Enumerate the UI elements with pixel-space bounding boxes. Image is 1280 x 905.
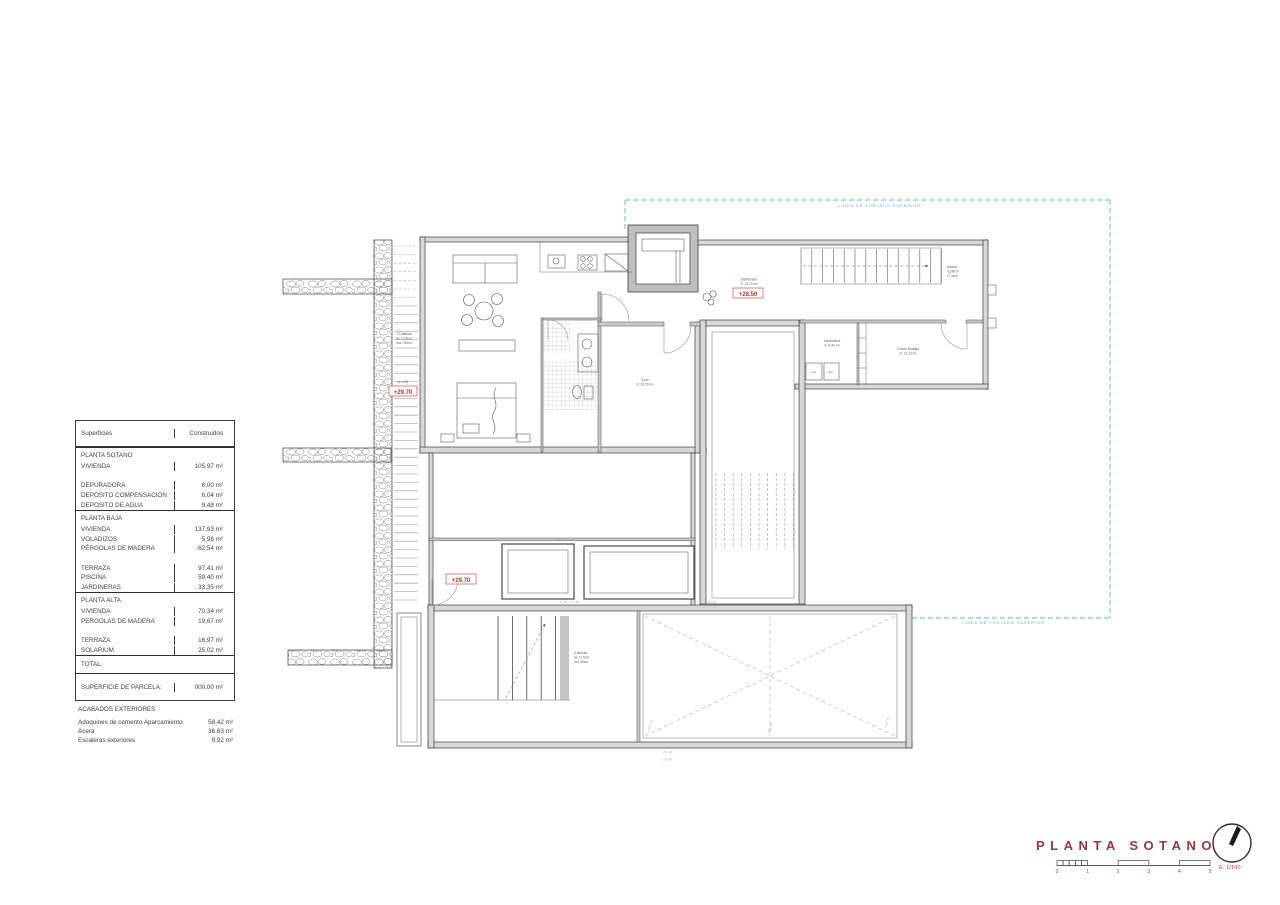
svg-text:29,45: 29,45 xyxy=(663,758,673,762)
gym-room-name: Gym xyxy=(642,378,649,382)
svg-text:2: 2 xyxy=(1117,869,1120,875)
svg-text:15,40: 15,40 xyxy=(707,600,717,604)
garage-cross-marks xyxy=(645,616,895,736)
acabados-list: ACABADOS EXTERIORES Adoquines de cemento… xyxy=(78,706,233,745)
water-tanks xyxy=(502,544,694,599)
svg-text:5,60 x 4,90: 5,60 x 4,90 xyxy=(555,538,574,542)
svg-text:4,285 m: 4,285 m xyxy=(947,270,959,274)
laundry-room-area: S: 6,44 m² xyxy=(824,344,840,348)
hall-room-area: S: 13,70 m² xyxy=(740,282,758,286)
svg-text:5,60 x 4,90: 5,60 x 4,90 xyxy=(560,600,579,604)
north-arrow-icon xyxy=(1213,824,1251,862)
drawing-sheet: LINEA DE FORJADO SUPERIOR LINEA DE FORJA… xyxy=(0,0,1280,905)
svg-text:A: 4,05: A: 4,05 xyxy=(398,380,409,384)
svg-text:+29,70: +29,70 xyxy=(646,719,654,731)
svg-text:17 tabicas: 17 tabicas xyxy=(396,332,411,336)
svg-text:de 17,5cm: de 17,5cm xyxy=(574,656,590,660)
svg-text:5: 5 xyxy=(1209,869,1212,875)
dryer-label: Sec. xyxy=(828,370,834,374)
svg-text:1: 1 xyxy=(1086,869,1089,875)
exterior-stair-dashed-treads xyxy=(394,246,418,298)
svg-text:+29,70: +29,70 xyxy=(766,722,774,734)
garage-stair-walkline xyxy=(506,624,545,698)
plan-title: PLANTA SOTANO xyxy=(1036,838,1217,853)
svg-text:3: 3 xyxy=(1147,869,1150,875)
forjado-label-bottom: LINEA DE FORJADO SUPERIOR xyxy=(962,621,1045,625)
scale-numbers: 012345 xyxy=(1056,869,1212,875)
svg-text:0: 0 xyxy=(1056,869,1059,875)
svg-text:6 tabicas: 6 tabicas xyxy=(574,651,588,655)
pool-hatch xyxy=(716,473,793,549)
svg-text:+29,70: +29,70 xyxy=(883,716,891,728)
scale-label: E. 1/100 xyxy=(1219,865,1241,871)
svg-text:de 17,5cm: de 17,5cm xyxy=(396,337,412,341)
areas-table: SuperficiesConstruidosPLANTA SOTANOVIVIE… xyxy=(75,420,235,701)
svg-text:17 peld.: 17 peld. xyxy=(947,274,959,278)
svg-text:4: 4 xyxy=(1178,869,1181,875)
bodega-room-name: Cuarto Bodega xyxy=(897,347,919,351)
forjado-label-top: LINEA DE FORJADO SUPERIOR xyxy=(838,204,921,208)
garage-stair-wall xyxy=(560,616,569,700)
level-label-tanks: +29.70 xyxy=(452,578,471,584)
acabados-title: ACABADOS EXTERIORES xyxy=(78,706,233,713)
svg-text:subida:: subida: xyxy=(947,265,958,269)
acabados-rows: Adoquines de cemento Aparcamiento58,42 m… xyxy=(78,718,233,745)
bodega-room-area: S: 13,13 m² xyxy=(899,352,917,356)
exterior-stair-treads xyxy=(394,306,418,600)
svg-text:hue. 30cm: hue. 30cm xyxy=(396,341,412,345)
stone-retaining-walls xyxy=(283,240,392,668)
scale-bar xyxy=(1057,861,1210,866)
walls-group xyxy=(397,225,996,748)
hall-room-name: Distribuidor xyxy=(741,278,759,282)
svg-text:con 30cm: con 30cm xyxy=(574,660,589,664)
gym-room-area: S: 32,70 m² xyxy=(636,383,654,387)
room-labels: Distribuidor S: 13,70 m² Gym S: 32,70 m²… xyxy=(396,265,959,664)
level-label-hall: +28.50 xyxy=(739,292,758,298)
washer-label: Lav. xyxy=(811,370,816,374)
level-label-stair: +29.70 xyxy=(394,390,413,396)
laundry-room-name: Lavandería xyxy=(824,339,841,343)
svg-text:28,10: 28,10 xyxy=(663,750,673,754)
